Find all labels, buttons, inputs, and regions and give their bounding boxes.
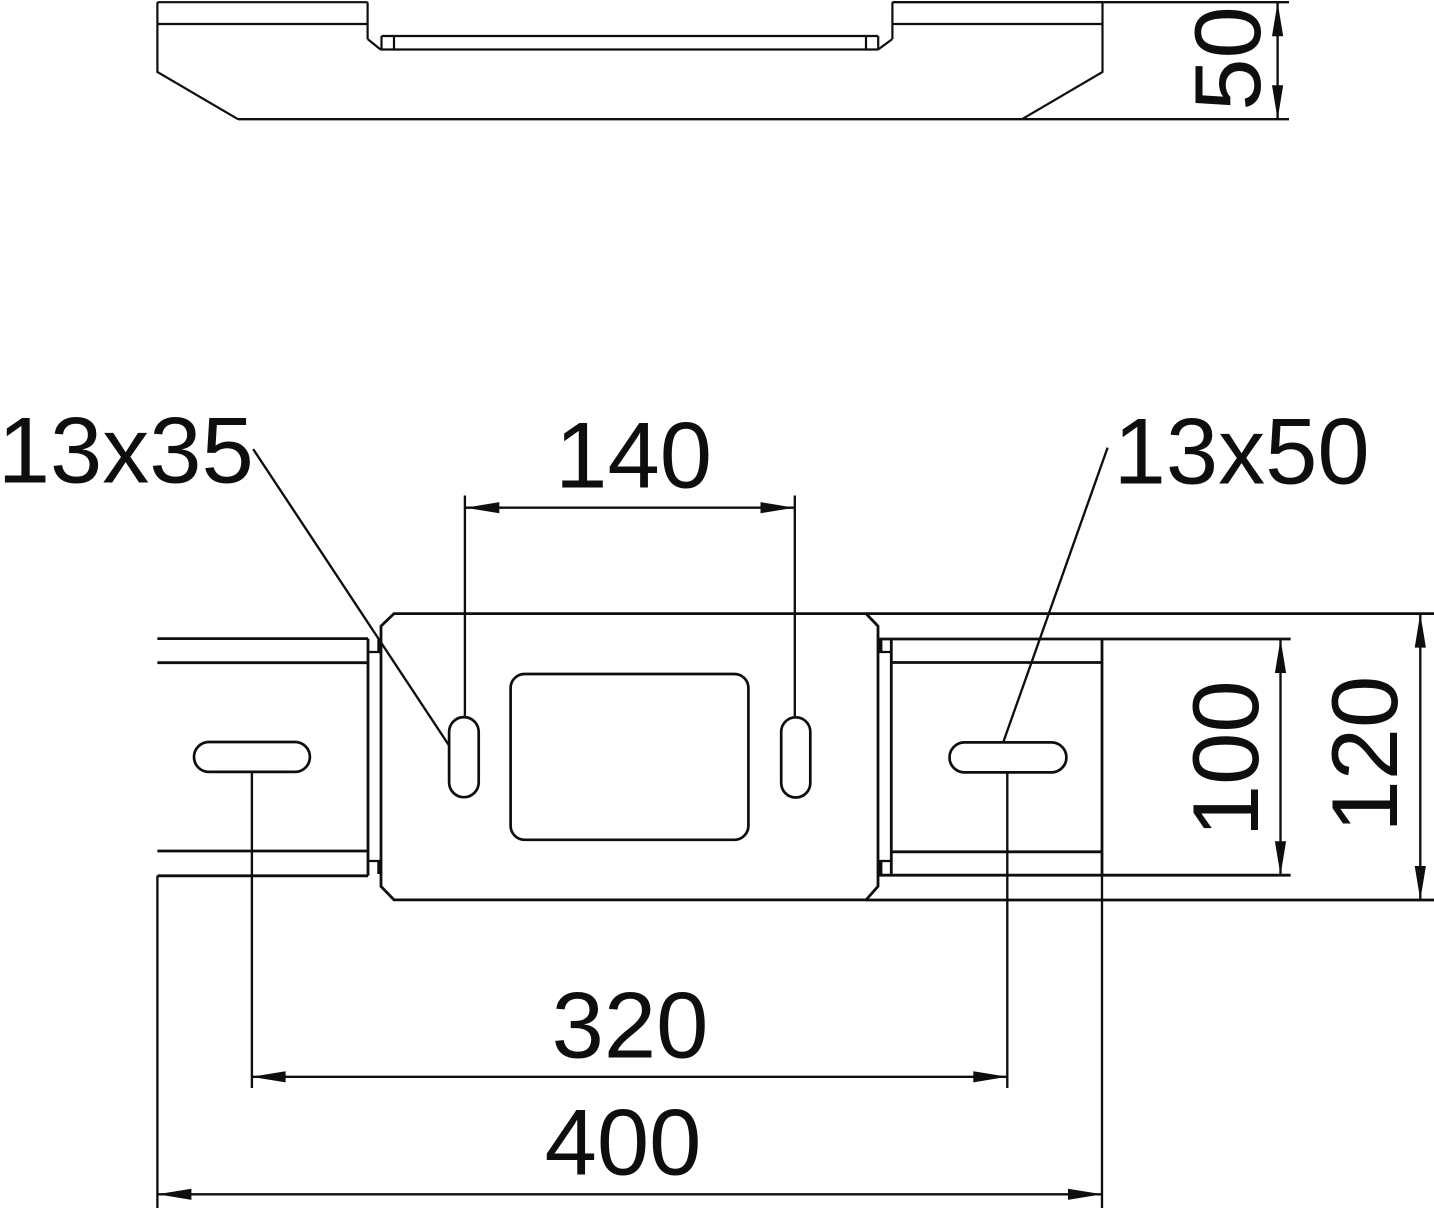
svg-text:140: 140 <box>555 403 712 508</box>
svg-text:100: 100 <box>1173 680 1278 837</box>
svg-text:50: 50 <box>1175 6 1280 111</box>
svg-text:13x50: 13x50 <box>1114 399 1370 504</box>
svg-text:13x35: 13x35 <box>0 398 254 503</box>
svg-text:400: 400 <box>545 1090 702 1195</box>
svg-text:320: 320 <box>552 972 709 1077</box>
svg-text:120: 120 <box>1312 676 1417 833</box>
